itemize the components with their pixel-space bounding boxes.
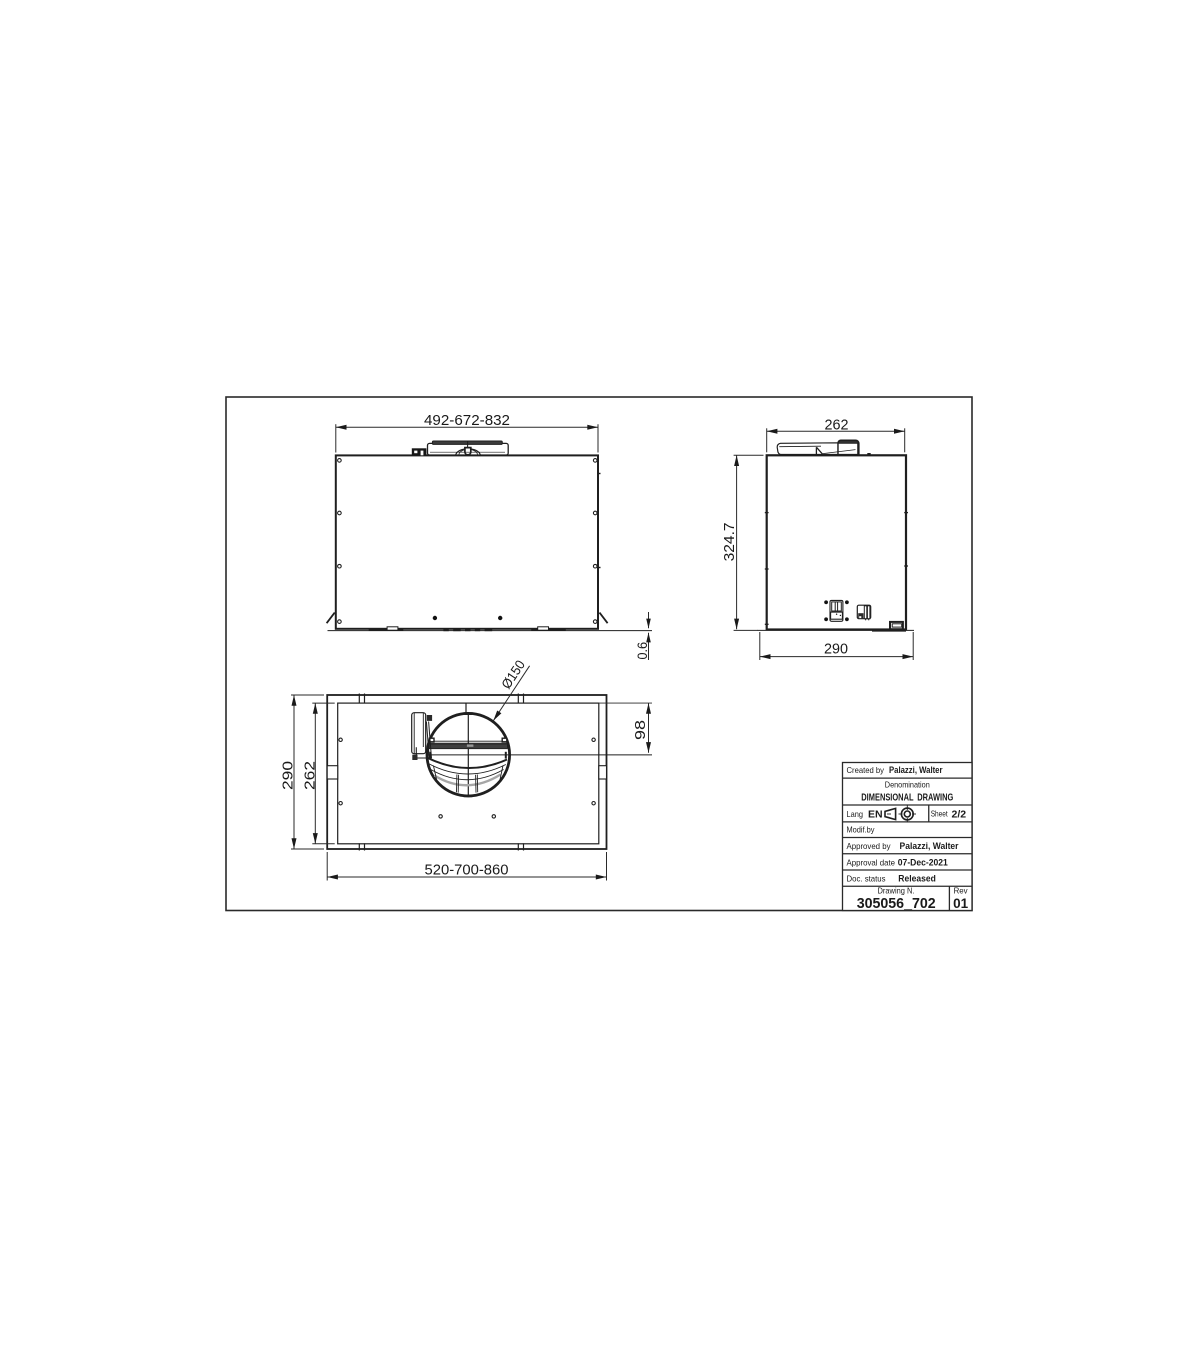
svg-text:262: 262 bbox=[303, 761, 319, 790]
svg-text:Approved by: Approved by bbox=[847, 842, 892, 851]
svg-text:01: 01 bbox=[953, 896, 969, 911]
svg-text:Created by: Created by bbox=[847, 766, 885, 775]
svg-text:Released: Released bbox=[898, 873, 936, 884]
svg-text:Modif.by: Modif.by bbox=[847, 826, 876, 835]
svg-text:305056_702: 305056_702 bbox=[857, 895, 936, 912]
svg-text:290: 290 bbox=[824, 641, 848, 657]
svg-text:EN: EN bbox=[868, 809, 883, 821]
svg-text:2/2: 2/2 bbox=[952, 809, 967, 821]
svg-text:Doc. status: Doc. status bbox=[847, 875, 886, 884]
svg-text:Approval date: Approval date bbox=[847, 858, 896, 867]
svg-text:Rev: Rev bbox=[954, 885, 969, 895]
svg-text:520-700-860: 520-700-860 bbox=[425, 862, 509, 878]
svg-text:07-Dec-2021: 07-Dec-2021 bbox=[898, 856, 948, 867]
svg-text:Lang: Lang bbox=[847, 810, 864, 819]
svg-text:Drawing N.: Drawing N. bbox=[878, 885, 915, 895]
svg-text:98: 98 bbox=[633, 720, 649, 740]
svg-text:290: 290 bbox=[280, 761, 296, 790]
svg-text:0.6: 0.6 bbox=[634, 642, 650, 660]
svg-text:Denomination: Denomination bbox=[885, 781, 930, 790]
svg-text:Palazzi, Walter: Palazzi, Walter bbox=[900, 840, 959, 851]
svg-text:DIMENSIONAL DRAWING: DIMENSIONAL DRAWING bbox=[861, 793, 953, 804]
svg-text:262: 262 bbox=[825, 418, 849, 434]
svg-text:324.7: 324.7 bbox=[722, 522, 738, 561]
svg-text:492-672-832: 492-672-832 bbox=[424, 413, 510, 429]
svg-text:Sheet: Sheet bbox=[931, 810, 949, 819]
svg-text:Palazzi, Walter: Palazzi, Walter bbox=[889, 764, 943, 775]
